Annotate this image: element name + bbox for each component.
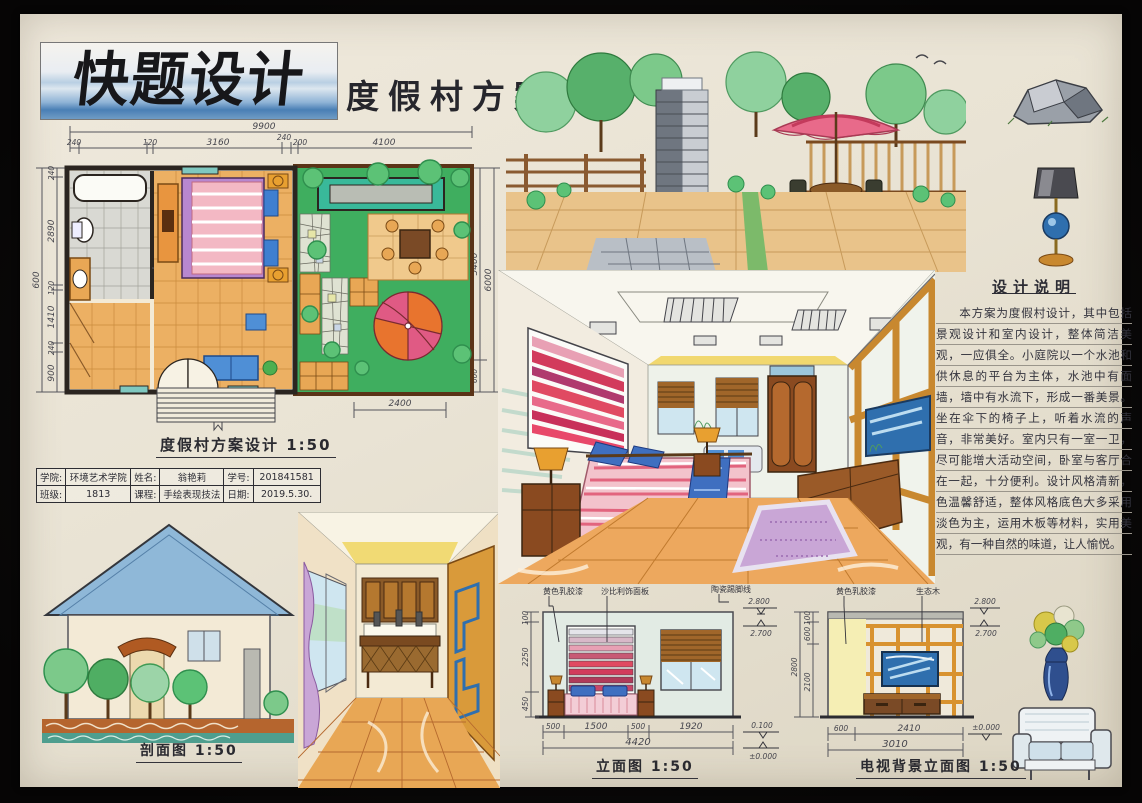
info-label: 学号: xyxy=(224,469,253,486)
info-value: 1813 xyxy=(66,486,131,503)
level-2800: 2.800 xyxy=(974,597,996,606)
bed-elevation-drawing: 黄色乳胶漆 沙比利饰面板 陶瓷踢脚线 2.800 2.700 0.100 ±0.… xyxy=(515,582,783,770)
logo-block: 快题设计 xyxy=(40,42,338,120)
design-notes-title: 设计说明 xyxy=(936,276,1132,297)
dim-9900: 9900 xyxy=(253,122,276,132)
floor-plan-drawing: 9900 240 120 3160 240 200 4100 240 2890 … xyxy=(32,118,524,468)
tv xyxy=(882,652,938,686)
tv-elevation-drawing: 黄色乳胶漆 生态木 2.800 2.700 ±0.000 2800 100 60… xyxy=(788,582,1003,770)
level-0000: ±0.000 xyxy=(972,723,1000,732)
info-label: 日期: xyxy=(224,486,253,503)
rock-sketch xyxy=(998,72,1110,130)
dim-4420: 4420 xyxy=(625,737,650,748)
dim-l-overall: 600 xyxy=(32,271,42,288)
floor-plan-caption: 度假村方案设计 1:50 xyxy=(156,434,336,458)
tv-cabinet xyxy=(864,694,940,714)
design-notes: 设计说明 本方案为度假村设计，其中包括景观设计和室内设计，整体简洁美观，一应俱全… xyxy=(936,276,1132,555)
dim-100: 100 xyxy=(521,611,530,626)
info-label: 学院: xyxy=(37,469,66,486)
info-value: 2019.5.30. xyxy=(253,486,320,503)
tv-elevation-caption: 电视背景立面图 1:50 xyxy=(856,756,1026,779)
dim-120: 120 xyxy=(143,138,158,147)
label-ceramic-trim: 陶瓷踢脚线 xyxy=(711,584,751,594)
level-2700: 2.700 xyxy=(750,629,772,638)
dim-200: 200 xyxy=(293,138,308,147)
dim-4100: 4100 xyxy=(373,138,396,148)
double-door xyxy=(768,366,816,472)
umbrella-plan xyxy=(374,292,442,360)
dim-2410: 2410 xyxy=(898,724,921,734)
hall-cabinet xyxy=(360,578,440,688)
paper-sheet: 快题设计 度假村方案 9900 240 120 3160 240 200 410… xyxy=(20,14,1122,787)
dim-500a: 500 xyxy=(546,722,561,731)
dim-r-6000: 6000 xyxy=(484,268,494,291)
info-label: 班级: xyxy=(37,486,66,503)
dim-l-2890: 2890 xyxy=(47,219,57,242)
level-marks xyxy=(968,608,1002,740)
dim-l-900: 900 xyxy=(47,364,57,381)
dim-l-240b: 240 xyxy=(47,341,56,356)
info-value: 环境艺术学院 xyxy=(66,469,131,486)
dim-2100: 2100 xyxy=(803,672,812,691)
headboard-panel xyxy=(567,626,635,694)
dim-600: 600 xyxy=(834,724,849,733)
info-value: 翁艳莉 xyxy=(160,469,224,486)
bed-elevation-caption: 立面图 1:50 xyxy=(592,756,698,779)
level-0100: 0.100 xyxy=(751,721,773,730)
hallway-perspective xyxy=(298,512,500,788)
lamp-sketch xyxy=(1028,162,1084,272)
background-trees xyxy=(516,52,966,152)
stairs xyxy=(157,388,275,430)
label-sapele-panel: 沙比利饰面板 xyxy=(601,586,649,596)
label-eco-wood: 生态木 xyxy=(916,586,940,596)
dim-1500: 1500 xyxy=(585,722,608,732)
logo-text: 快题设计 xyxy=(70,52,308,111)
column xyxy=(244,649,260,719)
section-view-drawing xyxy=(38,519,300,745)
info-value: 手绘表现技法 xyxy=(160,486,224,503)
dim-2800: 2800 xyxy=(790,657,799,676)
dim-2250: 2250 xyxy=(521,647,530,666)
stone-wall xyxy=(656,78,708,212)
flower-vase-sketch xyxy=(1022,602,1092,706)
dim-3010: 3010 xyxy=(882,739,907,750)
info-table: 学院: 环境艺术学院 姓名: 翁艳莉 学号: 201841581 班级: 181… xyxy=(36,468,321,503)
house-plan xyxy=(67,167,295,393)
dim-600v: 600 xyxy=(803,627,812,642)
dim-100: 100 xyxy=(803,611,812,626)
bedroom-perspective xyxy=(498,270,935,584)
dim-500b: 500 xyxy=(631,722,646,731)
dining-terrace xyxy=(368,214,468,280)
presentation-board: 快题设计 度假村方案 9900 240 120 3160 240 200 410… xyxy=(0,0,1142,803)
dim-2400: 2400 xyxy=(389,399,412,409)
dim-240b: 240 xyxy=(277,133,292,142)
level-2700: 2.700 xyxy=(975,629,997,638)
label-yellow-paint: 黄色乳胶漆 xyxy=(836,586,876,596)
info-value: 201841581 xyxy=(253,469,320,486)
dim-450: 450 xyxy=(521,697,530,712)
roof xyxy=(46,525,292,615)
courtyard-perspective xyxy=(506,42,966,272)
level-2800: 2.800 xyxy=(748,597,770,606)
info-label: 姓名: xyxy=(131,469,160,486)
info-label: 课程: xyxy=(131,486,160,503)
terrace-ground xyxy=(506,176,966,272)
birds xyxy=(916,55,946,64)
design-notes-body: 本方案为度假村设计，其中包括景观设计和室内设计，整体简洁美观，一应俱全。小庭院以… xyxy=(936,303,1132,555)
label-yellow-paint: 黄色乳胶漆 xyxy=(543,586,583,596)
dim-l-120: 120 xyxy=(47,281,56,296)
elevation-window xyxy=(661,630,721,690)
dim-240a: 240 xyxy=(67,138,82,147)
dim-l-240a: 240 xyxy=(47,166,56,181)
dim-3160: 3160 xyxy=(207,138,230,148)
garden-plan xyxy=(295,160,472,394)
yellow-wall xyxy=(829,619,866,717)
dim-l-1410: 1410 xyxy=(47,305,57,328)
level-0000: ±0.000 xyxy=(749,752,777,761)
section-caption: 剖面图 1:50 xyxy=(136,740,242,763)
dim-1920: 1920 xyxy=(680,722,703,732)
